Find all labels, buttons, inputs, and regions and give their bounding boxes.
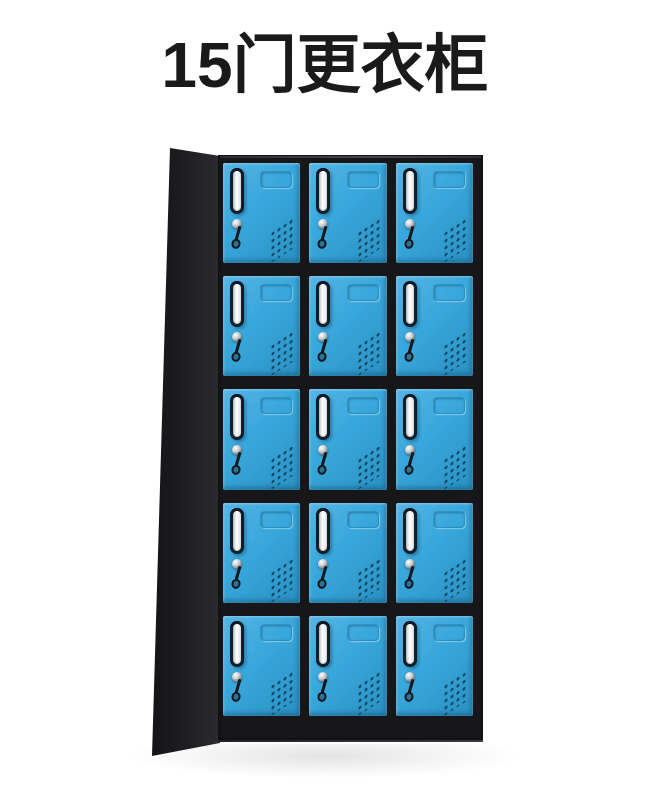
key-icon	[315, 338, 329, 363]
vent-holes-icon	[271, 331, 295, 377]
door-handle	[316, 168, 330, 214]
locker-door	[309, 163, 386, 263]
handle-chrome-bar	[233, 511, 241, 551]
handle-chrome-bar	[233, 284, 241, 324]
vent-holes-icon	[358, 670, 382, 716]
key-bow	[230, 238, 241, 250]
door-handle	[403, 281, 417, 327]
key-bow	[403, 464, 414, 476]
locker-door	[309, 503, 386, 603]
key-icon	[315, 451, 329, 476]
label-emboss	[433, 624, 465, 641]
key-icon	[402, 565, 416, 590]
door-handle	[230, 621, 244, 667]
key-bow	[230, 690, 241, 702]
floor-shadow	[133, 744, 517, 778]
locker-door	[223, 389, 300, 489]
locker-door	[396, 163, 473, 263]
label-emboss	[347, 397, 379, 414]
vent-holes-icon	[444, 444, 468, 490]
door-handle	[316, 508, 330, 554]
label-emboss	[260, 284, 292, 301]
label-emboss	[347, 171, 379, 188]
handle-chrome-bar	[319, 511, 327, 551]
lock-and-key	[317, 218, 337, 252]
handle-chrome-bar	[319, 284, 327, 324]
product-photo	[0, 0, 650, 790]
key-icon	[315, 225, 329, 250]
door-handle	[316, 621, 330, 667]
locker-door	[309, 276, 386, 376]
handle-chrome-bar	[406, 284, 414, 324]
handle-chrome-bar	[233, 171, 241, 211]
lock-and-key	[317, 331, 337, 365]
door-handle	[230, 168, 244, 214]
product-page: 15门更衣柜	[0, 0, 650, 790]
vent-holes-icon	[444, 670, 468, 716]
lock-and-key	[231, 558, 251, 592]
lock-and-key	[404, 218, 424, 252]
key-bow	[316, 690, 327, 702]
key-bow	[403, 238, 414, 250]
vent-holes-icon	[271, 670, 295, 716]
key-icon	[229, 225, 243, 250]
handle-chrome-bar	[406, 171, 414, 211]
door-handle	[230, 394, 244, 440]
lock-and-key	[231, 444, 251, 478]
lock-and-key	[317, 671, 337, 705]
key-bow	[316, 351, 327, 363]
door-handle	[403, 508, 417, 554]
key-shaft	[321, 565, 328, 579]
lock-and-key	[231, 331, 251, 365]
key-bow	[316, 577, 327, 589]
key-shaft	[234, 565, 241, 579]
key-icon	[402, 225, 416, 250]
cabinet-front	[218, 155, 483, 742]
vent-holes-icon	[444, 557, 468, 603]
key-bow	[230, 351, 241, 363]
key-bow	[403, 690, 414, 702]
vent-holes-icon	[444, 331, 468, 377]
label-emboss	[260, 624, 292, 641]
handle-chrome-bar	[319, 171, 327, 211]
door-handle	[230, 281, 244, 327]
label-emboss	[260, 397, 292, 414]
locker-door	[309, 616, 386, 716]
handle-chrome-bar	[406, 624, 414, 664]
locker-door	[396, 616, 473, 716]
label-emboss	[433, 511, 465, 528]
label-emboss	[347, 284, 379, 301]
key-icon	[315, 565, 329, 590]
key-shaft	[407, 565, 414, 579]
handle-chrome-bar	[233, 624, 241, 664]
vent-holes-icon	[271, 557, 295, 603]
key-bow	[316, 238, 327, 250]
cabinet-side-panel	[152, 143, 220, 759]
key-bow	[403, 577, 414, 589]
key-bow	[230, 577, 241, 589]
door-handle	[316, 281, 330, 327]
key-icon	[402, 678, 416, 703]
locker-door	[396, 276, 473, 376]
lock-and-key	[231, 218, 251, 252]
locker-door	[309, 389, 386, 489]
key-bow	[403, 351, 414, 363]
vent-holes-icon	[271, 217, 295, 263]
key-icon	[229, 338, 243, 363]
label-emboss	[260, 171, 292, 188]
lock-and-key	[404, 671, 424, 705]
lock-and-key	[317, 444, 337, 478]
key-icon	[402, 338, 416, 363]
locker-door	[223, 163, 300, 263]
label-emboss	[433, 284, 465, 301]
label-emboss	[347, 511, 379, 528]
label-emboss	[433, 171, 465, 188]
door-handle	[316, 394, 330, 440]
vent-holes-icon	[358, 217, 382, 263]
vent-holes-icon	[444, 217, 468, 263]
handle-chrome-bar	[319, 397, 327, 437]
door-grid	[223, 163, 473, 716]
locker-door	[396, 389, 473, 489]
door-handle	[403, 168, 417, 214]
door-handle	[403, 621, 417, 667]
key-bow	[316, 464, 327, 476]
lock-and-key	[404, 331, 424, 365]
locker-door	[223, 503, 300, 603]
lock-and-key	[317, 558, 337, 592]
key-icon	[402, 451, 416, 476]
key-bow	[230, 464, 241, 476]
key-icon	[315, 678, 329, 703]
handle-chrome-bar	[233, 397, 241, 437]
locker-cabinet	[152, 143, 483, 759]
handle-chrome-bar	[406, 511, 414, 551]
lock-and-key	[404, 558, 424, 592]
key-icon	[229, 678, 243, 703]
lock-and-key	[404, 444, 424, 478]
door-handle	[230, 508, 244, 554]
label-emboss	[260, 511, 292, 528]
key-icon	[229, 451, 243, 476]
door-handle	[403, 394, 417, 440]
locker-door	[223, 276, 300, 376]
handle-chrome-bar	[406, 397, 414, 437]
key-icon	[229, 565, 243, 590]
vent-holes-icon	[271, 444, 295, 490]
lock-and-key	[231, 671, 251, 705]
vent-holes-icon	[358, 444, 382, 490]
vent-holes-icon	[358, 557, 382, 603]
handle-chrome-bar	[319, 624, 327, 664]
locker-door	[396, 503, 473, 603]
locker-door	[223, 616, 300, 716]
vent-holes-icon	[358, 331, 382, 377]
label-emboss	[433, 397, 465, 414]
label-emboss	[347, 624, 379, 641]
